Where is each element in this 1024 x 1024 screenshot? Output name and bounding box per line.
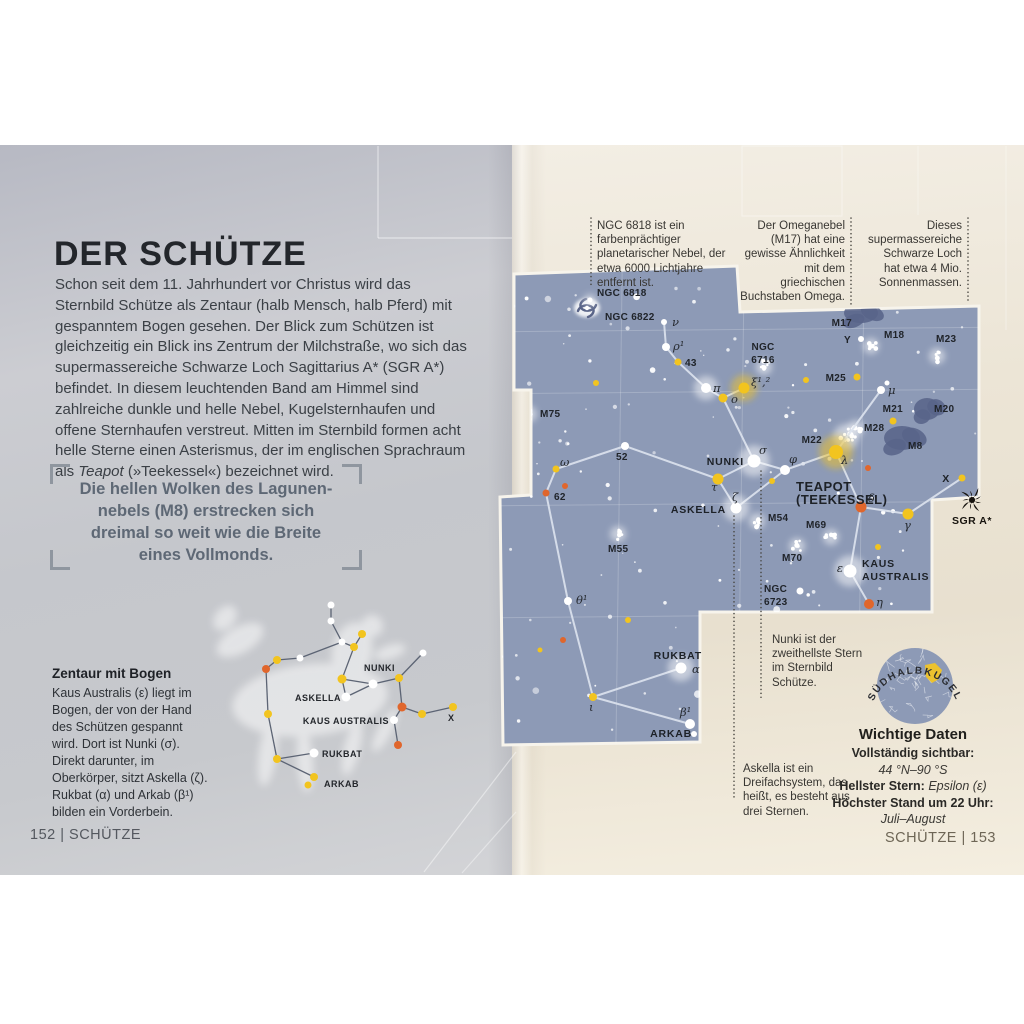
svg-text:KAUS AUSTRALIS: KAUS AUSTRALIS: [303, 716, 389, 726]
page-footer-right: SCHÜTZE | 153: [840, 830, 996, 846]
svg-text:ε: ε: [837, 561, 843, 575]
svg-text:ω: ω: [560, 455, 570, 469]
svg-text:M18: M18: [884, 330, 904, 341]
quote-block: Die hellen Wolken des Lagunen-nebels (M8…: [50, 464, 362, 570]
svg-text:M25: M25: [826, 373, 846, 384]
callout-omega-nebula: Der Omeganebel (M17) hat eine gewisse Äh…: [737, 219, 845, 304]
svg-text:M21: M21: [883, 404, 903, 415]
svg-text:M75: M75: [540, 409, 560, 420]
svg-text:ζ: ζ: [732, 490, 739, 504]
hemisphere-inset: SÜDHALBKUGEL: [853, 608, 980, 735]
facts-row: Höchster Stand um 22 Uhr:Juli–August: [810, 795, 1016, 828]
sidebar-note: Zentaur mit Bogen Kaus Australis (ε) lie…: [52, 666, 208, 821]
sidebar-heading: Zentaur mit Bogen: [52, 666, 208, 681]
facts-block: Wichtige Daten Vollständig sichtbar:44 °…: [810, 726, 1016, 828]
svg-text:X: X: [448, 713, 455, 723]
callout-black-hole: Dieses supermassereiche Schwarze Loch ha…: [867, 219, 962, 290]
svg-text:M17: M17: [832, 318, 852, 329]
svg-text:X: X: [942, 473, 950, 485]
svg-text:M8: M8: [908, 441, 923, 452]
svg-text:γ: γ: [904, 518, 911, 532]
svg-text:RUKBAT: RUKBAT: [654, 650, 702, 662]
svg-text:Y: Y: [844, 335, 851, 346]
facts-row: Hellster Stern: Epsilon (ε): [810, 778, 1016, 795]
svg-text:ι: ι: [589, 700, 594, 714]
svg-text:ASKELLA: ASKELLA: [671, 504, 726, 516]
svg-text:M70: M70: [782, 553, 802, 564]
svg-text:λ: λ: [840, 453, 848, 467]
svg-text:M28: M28: [864, 423, 884, 434]
svg-text:μ: μ: [888, 383, 895, 397]
svg-text:NUNKI: NUNKI: [707, 456, 744, 468]
svg-text:M22: M22: [802, 435, 822, 446]
svg-text:NGC 6822: NGC 6822: [605, 312, 655, 323]
svg-text:62: 62: [554, 492, 566, 503]
svg-text:M55: M55: [608, 544, 628, 555]
svg-text:RUKBAT: RUKBAT: [322, 749, 362, 759]
star-cluster-glow: [521, 406, 537, 422]
svg-text:ν: ν: [672, 315, 679, 329]
svg-text:δ: δ: [868, 491, 875, 505]
svg-text:β¹: β¹: [679, 705, 691, 719]
svg-text:θ¹: θ¹: [576, 593, 588, 607]
svg-text:M20: M20: [934, 404, 954, 415]
facts-heading: Wichtige Daten: [810, 726, 1016, 743]
sidebar-body: Kaus Australis (ε) liegt im Bogen, der v…: [52, 685, 208, 821]
svg-text:σ: σ: [759, 443, 768, 457]
page-title: DER SCHÜTZE: [54, 235, 307, 274]
svg-text:ARKAB: ARKAB: [324, 779, 359, 789]
svg-text:η: η: [876, 595, 883, 609]
svg-text:M23: M23: [936, 334, 956, 345]
callout-ngc6818: NGC 6818 ist ein farbenprächtiger planet…: [597, 219, 733, 290]
svg-text:α: α: [692, 662, 700, 676]
svg-text:ο: ο: [731, 392, 738, 406]
centaur-mini-map: NUNKIASKELLAKAUS AUSTRALISRUKBATARKABX: [185, 580, 485, 815]
svg-text:π: π: [712, 381, 721, 395]
page-footer-left: 152 | SCHÜTZE: [30, 827, 141, 843]
svg-text:52: 52: [616, 452, 628, 463]
svg-text:NUNKI: NUNKI: [364, 663, 395, 673]
svg-text:τ: τ: [711, 480, 718, 494]
svg-text:ARKAB: ARKAB: [650, 728, 692, 740]
intro-paragraph: Schon seit dem 11. Jahrhundert vor Chris…: [55, 275, 467, 483]
svg-text:ASKELLA: ASKELLA: [295, 693, 341, 703]
svg-text:M69: M69: [806, 520, 826, 531]
svg-text:φ: φ: [789, 452, 797, 466]
sgr-a-label: SGR A*: [952, 515, 992, 527]
svg-text:ρ¹: ρ¹: [672, 339, 684, 353]
facts-rows: Vollständig sichtbar:44 °N–90 °SHellster…: [810, 745, 1016, 828]
svg-text:M54: M54: [768, 513, 788, 524]
facts-row: Vollständig sichtbar:44 °N–90 °S: [810, 745, 1016, 778]
svg-text:ξ¹,²: ξ¹,²: [751, 375, 771, 389]
quote-text: Die hellen Wolken des Lagunen-nebels (M8…: [66, 478, 346, 566]
svg-text:43: 43: [685, 358, 697, 369]
